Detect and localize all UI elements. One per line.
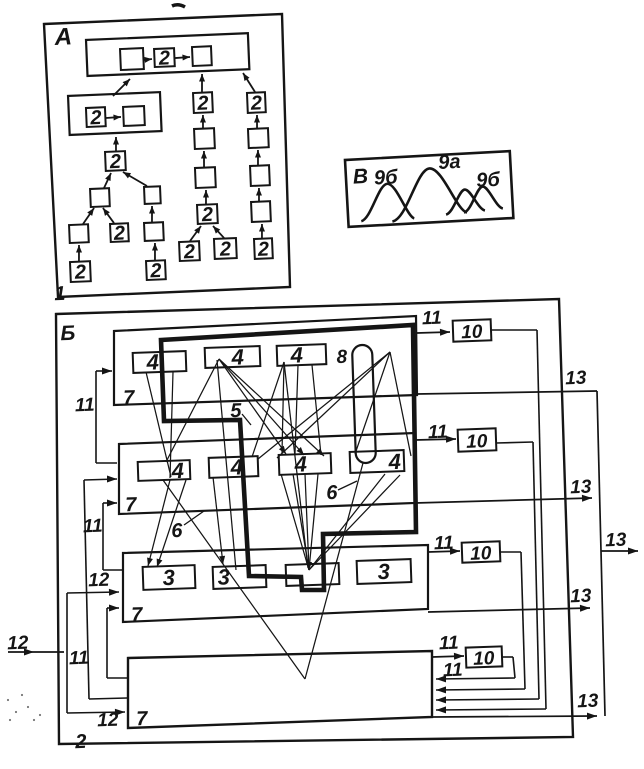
svg-text:2: 2 xyxy=(157,47,170,69)
svg-text:12: 12 xyxy=(88,570,110,592)
svg-text:3: 3 xyxy=(217,564,230,589)
svg-text:2: 2 xyxy=(89,107,102,129)
svg-text:2: 2 xyxy=(108,151,121,173)
svg-text:8: 8 xyxy=(336,347,348,368)
svg-text:4: 4 xyxy=(229,454,243,479)
svg-text:12: 12 xyxy=(97,710,119,732)
svg-text:13: 13 xyxy=(565,368,587,390)
svg-text:7: 7 xyxy=(125,494,138,516)
svg-text:2: 2 xyxy=(249,92,262,114)
svg-text:11: 11 xyxy=(439,633,459,655)
svg-text:4: 4 xyxy=(145,349,159,374)
svg-text:4: 4 xyxy=(387,449,401,474)
svg-text:2: 2 xyxy=(182,241,195,263)
svg-text:1: 1 xyxy=(54,283,66,305)
svg-text:2: 2 xyxy=(112,222,125,244)
svg-text:9б: 9б xyxy=(476,169,501,192)
svg-text:2: 2 xyxy=(74,731,87,753)
svg-text:7: 7 xyxy=(131,604,144,626)
svg-text:11: 11 xyxy=(443,660,463,682)
svg-text:11: 11 xyxy=(83,516,103,538)
svg-text:4: 4 xyxy=(230,344,244,369)
svg-text:9б: 9б xyxy=(373,166,398,189)
svg-text:3: 3 xyxy=(377,559,390,584)
svg-text:13: 13 xyxy=(570,586,592,608)
svg-text:В: В xyxy=(352,165,368,189)
svg-text:2: 2 xyxy=(218,238,231,260)
svg-text:4: 4 xyxy=(289,342,303,367)
svg-text:4: 4 xyxy=(170,458,184,483)
svg-text:2: 2 xyxy=(73,261,86,283)
svg-text:11: 11 xyxy=(434,533,454,555)
svg-text:10: 10 xyxy=(473,648,495,670)
svg-text:10: 10 xyxy=(466,431,488,453)
svg-text:А: А xyxy=(53,23,72,51)
svg-text:12: 12 xyxy=(7,633,29,655)
svg-text:11: 11 xyxy=(75,395,95,417)
svg-text:11: 11 xyxy=(69,648,89,670)
svg-text:2: 2 xyxy=(149,260,162,282)
svg-text:2: 2 xyxy=(256,238,269,260)
svg-text:2: 2 xyxy=(196,92,209,114)
svg-text:10: 10 xyxy=(461,322,483,344)
svg-text:5: 5 xyxy=(230,400,243,422)
svg-text:7: 7 xyxy=(136,708,149,730)
svg-text:10: 10 xyxy=(470,543,492,565)
svg-text:Б: Б xyxy=(60,322,76,346)
svg-text:13: 13 xyxy=(577,691,599,713)
svg-text:3: 3 xyxy=(162,565,175,590)
svg-text:7: 7 xyxy=(123,387,136,409)
svg-text:11: 11 xyxy=(422,308,442,330)
svg-text:9а: 9а xyxy=(438,151,461,174)
svg-text:11: 11 xyxy=(428,422,448,444)
svg-text:6: 6 xyxy=(326,482,339,504)
svg-text:13: 13 xyxy=(605,530,627,552)
svg-text:6: 6 xyxy=(171,520,184,542)
svg-text:13: 13 xyxy=(570,477,592,499)
svg-text:2: 2 xyxy=(200,204,213,226)
